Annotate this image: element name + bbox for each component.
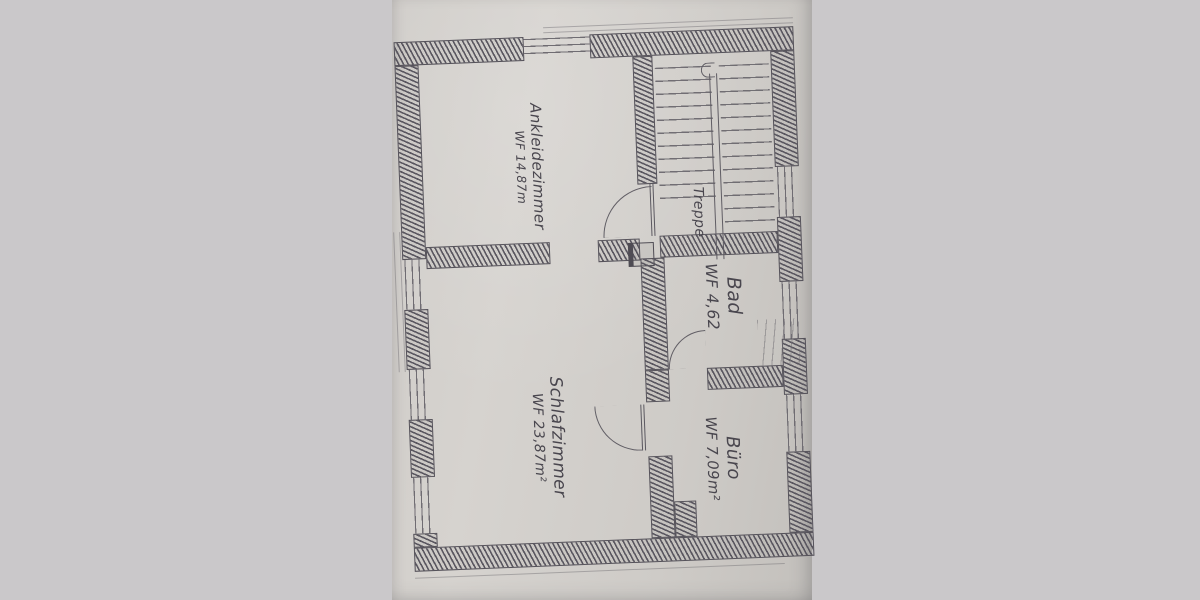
room-label-buero: Büro WF 7,09m²: [695, 393, 746, 525]
floor-plan-photo: Ankleidezimmer WF 14,87m Treppe Bad WF 4…: [392, 0, 812, 600]
wall-segment: [404, 309, 430, 370]
window-symbol: [413, 477, 435, 534]
pillar: [674, 500, 697, 537]
room-area: WF 4,62: [700, 250, 723, 343]
door-arc: [594, 405, 642, 453]
wall-segment: [770, 50, 799, 167]
floor-plan-drawing: Ankleidezimmer WF 14,87m Treppe Bad WF 4…: [394, 26, 815, 572]
room-label-schlafzimmer: Schlafzimmer WF 23,87m²: [518, 352, 571, 524]
window-glazing-lines: [757, 318, 801, 366]
wall-segment: [394, 37, 525, 66]
stair-treads-right: [719, 63, 776, 233]
wall-segment: [648, 455, 675, 538]
room-name: Bad: [719, 249, 746, 342]
screenshot-canvas: Ankleidezimmer WF 14,87m Treppe Bad WF 4…: [0, 0, 1200, 600]
wall-segment: [777, 216, 804, 282]
window-symbol: [409, 369, 431, 420]
wall-segment: [426, 242, 551, 269]
stair-handrail-hook: [701, 62, 716, 78]
window-symbol: [404, 259, 426, 310]
window-symbol: [786, 394, 808, 452]
room-label-ankleidezimmer: Ankleidezimmer WF 14,87m: [500, 91, 550, 243]
letterbox-left: [0, 0, 392, 600]
wall-segment: [589, 26, 794, 58]
wall-segment: [409, 419, 435, 478]
letterbox-right: [812, 0, 1200, 600]
wall-segment: [707, 365, 784, 390]
room-label-treppe: Treppe: [685, 174, 708, 251]
wall-segment: [413, 533, 438, 548]
wall-segment: [632, 56, 657, 185]
window-symbol: [777, 166, 799, 217]
wall-segment: [645, 369, 670, 402]
wall-segment: [640, 258, 668, 371]
wall-segment: [786, 451, 813, 533]
room-name: Treppe: [688, 174, 709, 251]
window-symbol: [524, 36, 591, 59]
room-label-bad: Bad WF 4,62: [697, 249, 747, 343]
door-arc: [602, 186, 654, 238]
wall-segment: [394, 65, 426, 260]
